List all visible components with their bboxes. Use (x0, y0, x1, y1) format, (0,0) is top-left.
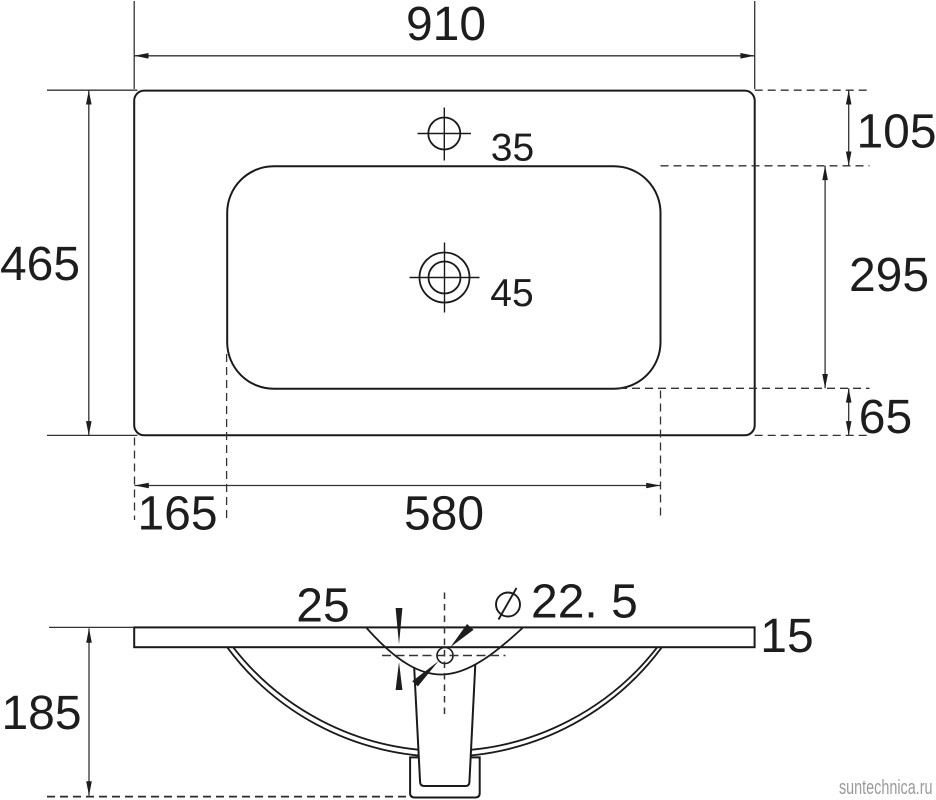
svg-text:15: 15 (760, 610, 813, 663)
svg-text:185: 185 (1, 687, 81, 740)
svg-text:65: 65 (859, 391, 912, 444)
svg-text:465: 465 (0, 238, 80, 291)
svg-text:105: 105 (856, 105, 936, 158)
svg-text:165: 165 (137, 487, 217, 540)
svg-text:22. 5: 22. 5 (531, 575, 638, 628)
svg-text:25: 25 (296, 580, 349, 633)
svg-text:suntechnica.ru: suntechnica.ru (839, 776, 933, 799)
svg-text:295: 295 (849, 249, 929, 302)
svg-text:45: 45 (490, 272, 533, 315)
svg-text:580: 580 (404, 487, 484, 540)
svg-text:35: 35 (491, 126, 534, 169)
svg-text:910: 910 (406, 0, 486, 51)
